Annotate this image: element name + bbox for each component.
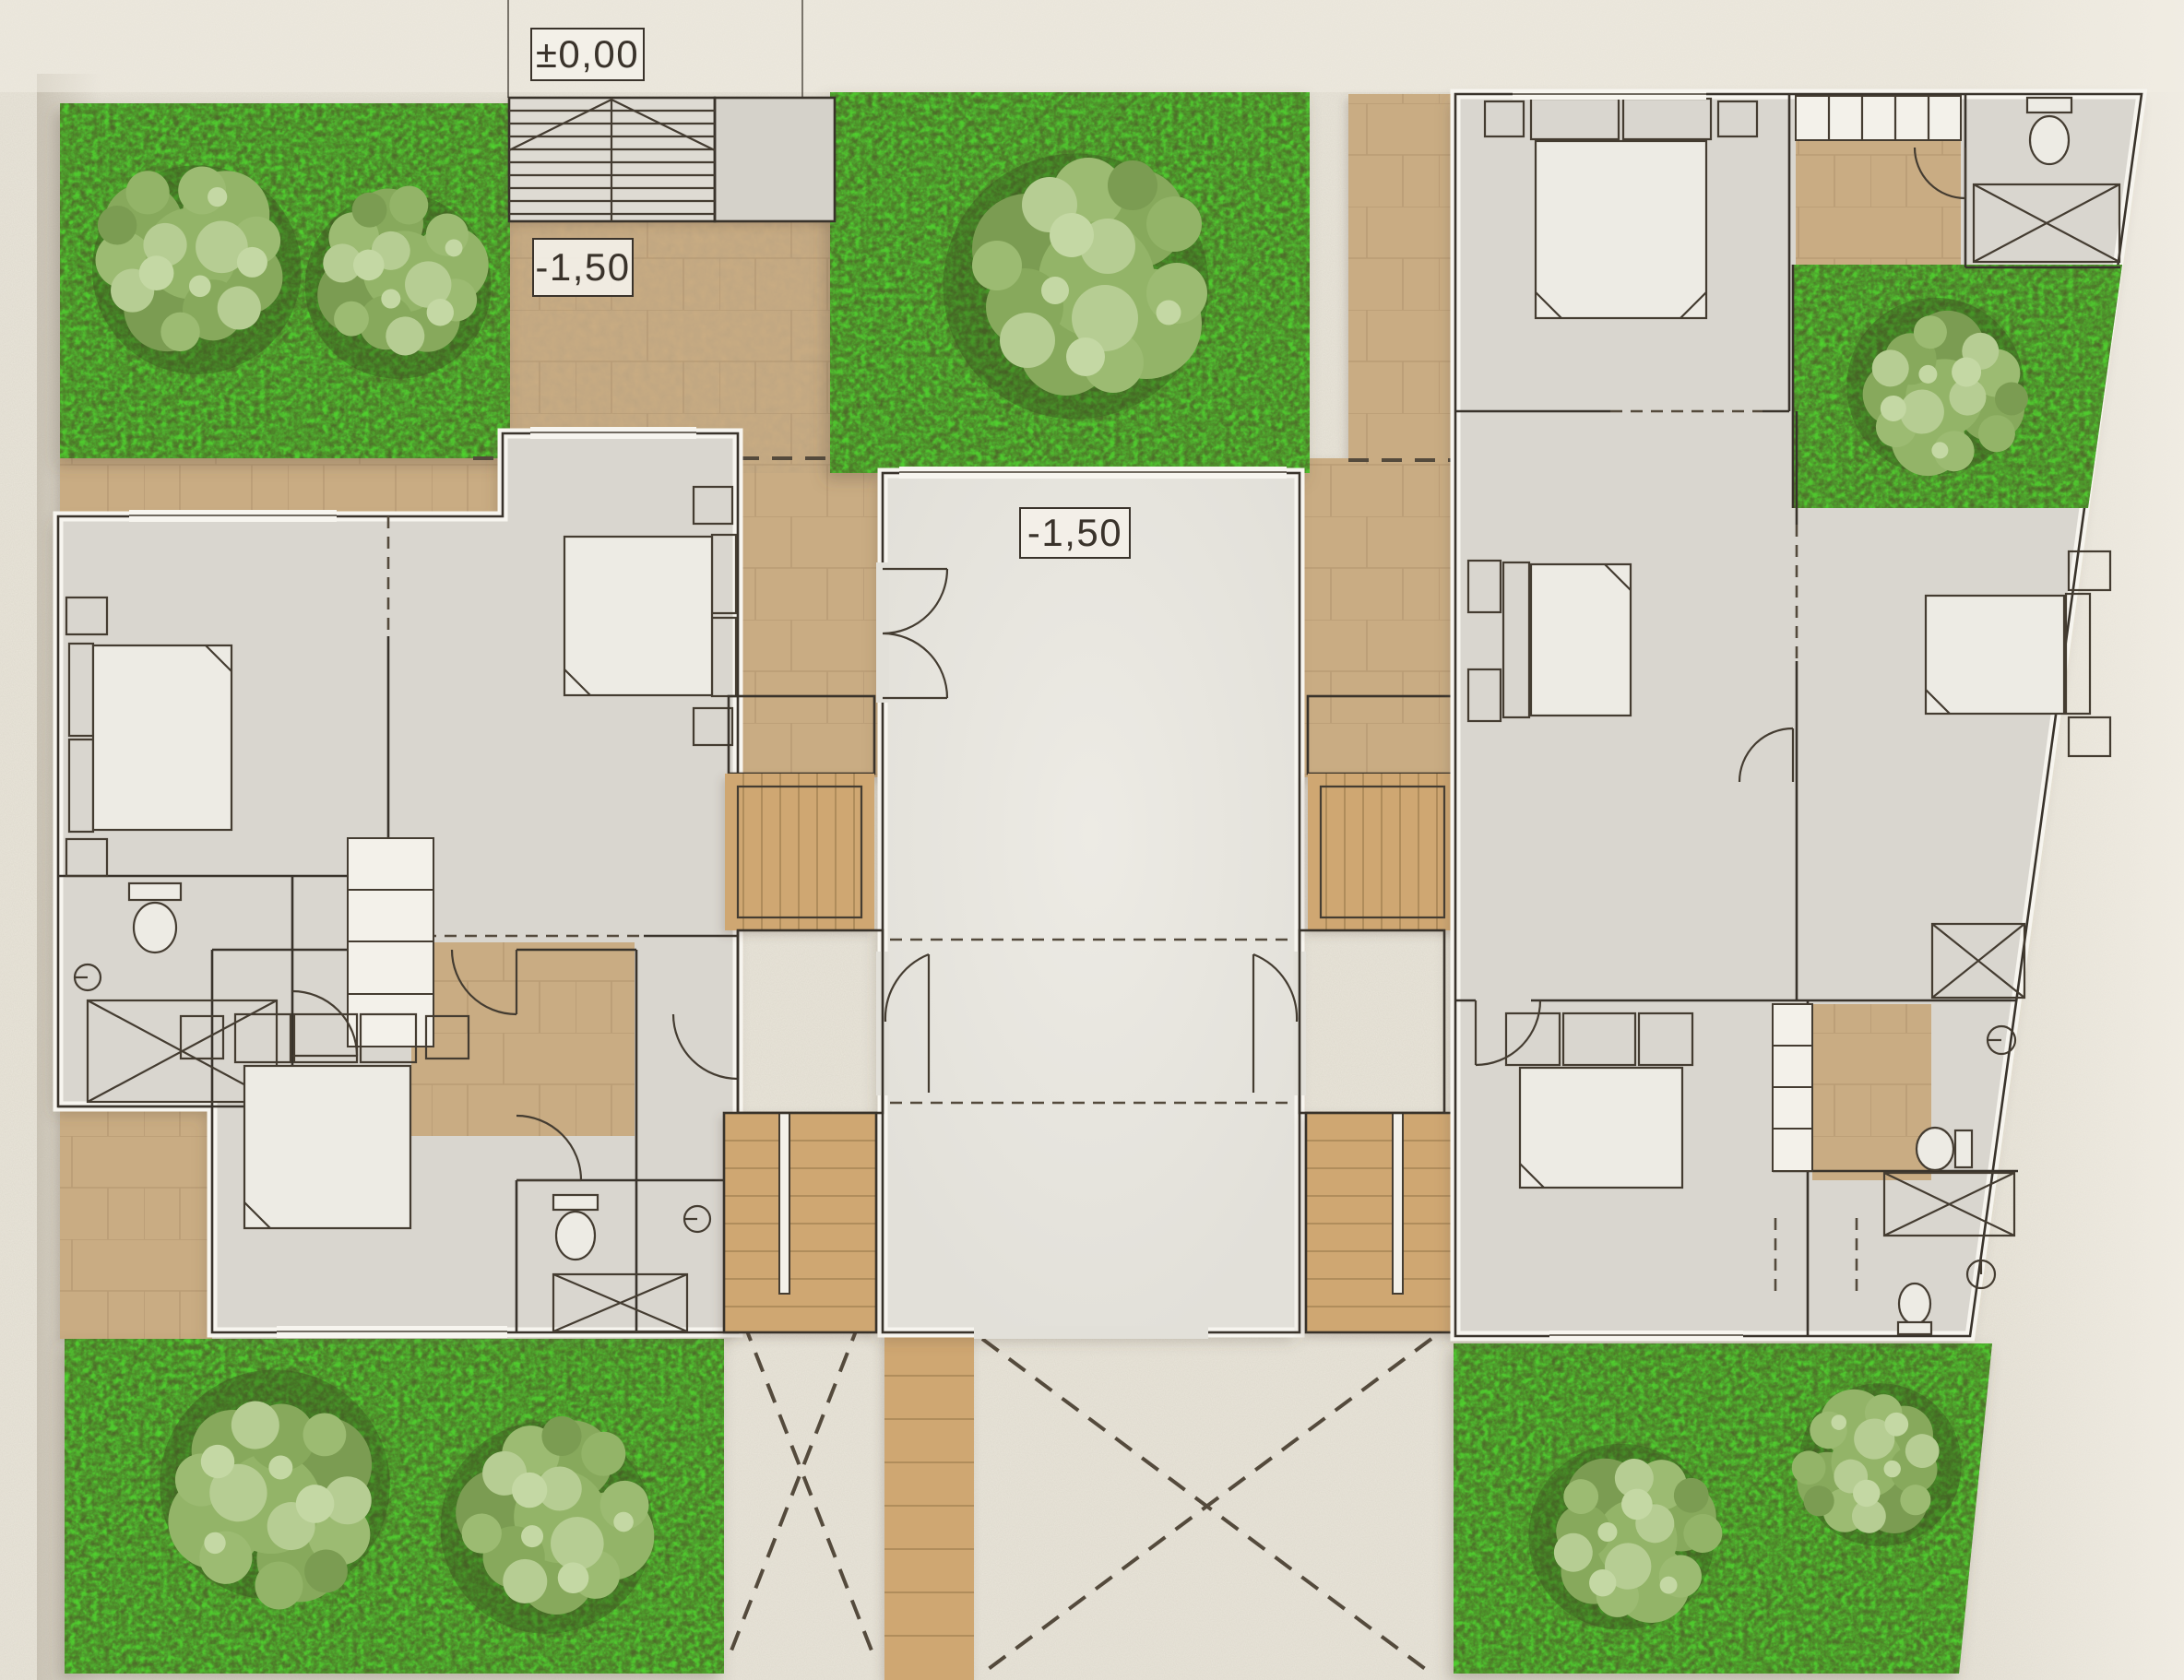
site-plan-sheet: ±0,00 -1,50 -1,50 [0, 0, 2184, 1680]
stairs-icon [724, 1113, 876, 1332]
toilet-icon [2027, 98, 2071, 164]
closet-icon [1796, 96, 1961, 140]
label-elevation-courtyard: -1,50 [1019, 507, 1131, 559]
toilet-icon [553, 1195, 598, 1260]
toilet-icon [129, 883, 181, 952]
floor-plan-drawing [0, 0, 2184, 1680]
stairs-icon [1306, 1113, 1458, 1332]
wood-walkway [884, 1332, 974, 1680]
toilet-icon [1917, 1128, 1972, 1170]
toilet-icon [1898, 1284, 1931, 1334]
label-elevation-zero: ±0,00 [530, 28, 645, 81]
closet-icon [1773, 1004, 1812, 1171]
label-elevation-entry: -1,50 [532, 238, 634, 297]
hall-stone-floor [411, 942, 635, 1136]
